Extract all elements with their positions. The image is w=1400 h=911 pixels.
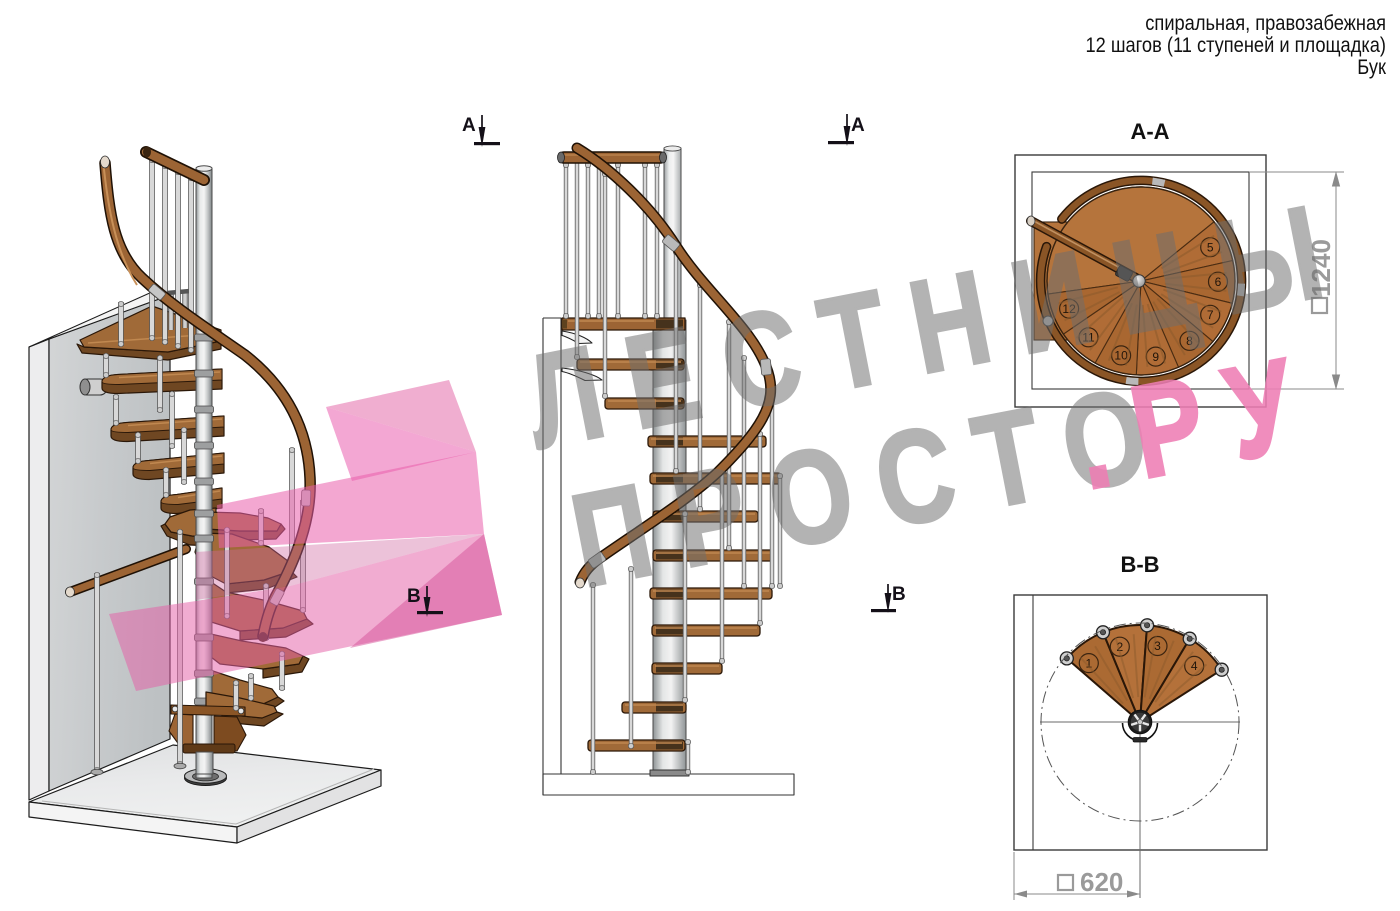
svg-text:B: B — [407, 586, 421, 607]
svg-text:A-A: A-A — [1130, 119, 1169, 144]
svg-text:спиральная, правозабежная: спиральная, правозабежная — [1145, 12, 1386, 35]
svg-text:4: 4 — [1191, 659, 1198, 673]
svg-text:12 шагов (11 ступеней и площад: 12 шагов (11 ступеней и площадка) — [1085, 34, 1386, 57]
svg-text:A: A — [851, 115, 865, 136]
svg-text:Бук: Бук — [1357, 56, 1386, 79]
svg-text:B-B: B-B — [1120, 552, 1159, 577]
svg-text:B: B — [892, 584, 906, 605]
svg-text:A: A — [462, 115, 476, 136]
svg-text:620: 620 — [1080, 867, 1123, 897]
